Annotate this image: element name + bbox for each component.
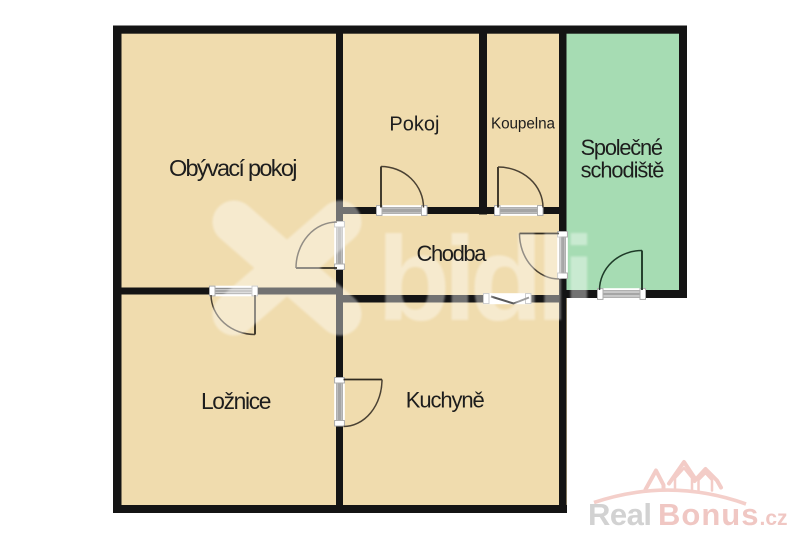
svg-text:Koupelna: Koupelna [491, 116, 555, 133]
svg-text:Pokoj: Pokoj [389, 114, 439, 136]
svg-text:Ložnice: Ložnice [201, 388, 272, 414]
svg-text:Kuchyně: Kuchyně [406, 388, 485, 413]
svg-text:schodiště: schodiště [581, 158, 665, 183]
svg-text:Bonus: Bonus [658, 497, 759, 532]
svg-text:Obývací pokoj: Obývací pokoj [169, 155, 298, 181]
svg-text:Real: Real [588, 497, 651, 532]
svg-text:Chodba: Chodba [417, 241, 488, 266]
svg-text:bidli: bidli [377, 212, 589, 346]
svg-text:Společné: Společné [581, 135, 663, 160]
svg-text:.cz: .cz [760, 507, 788, 530]
